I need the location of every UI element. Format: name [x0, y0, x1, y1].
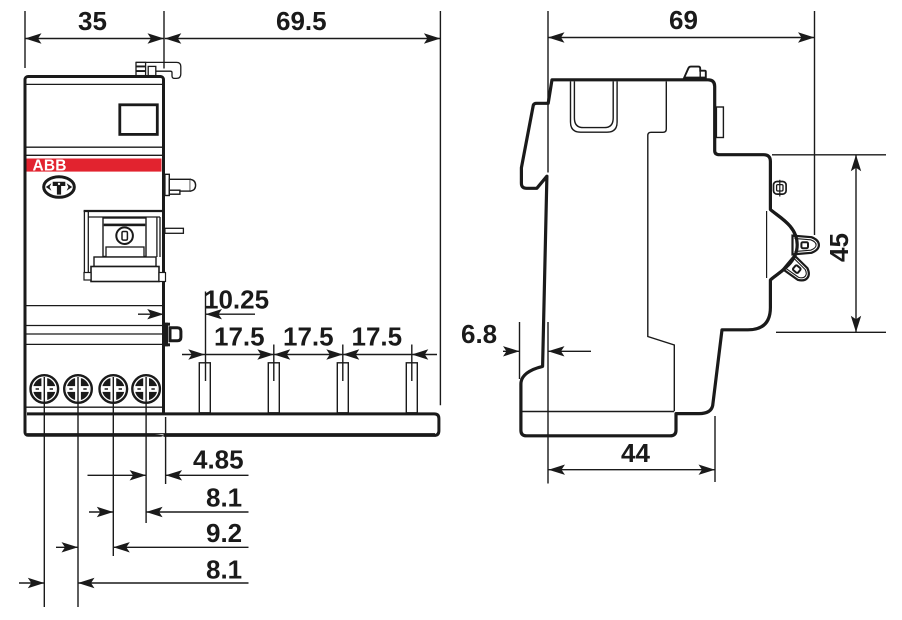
svg-text:69.5: 69.5: [276, 6, 327, 36]
svg-text:4.85: 4.85: [193, 444, 244, 474]
svg-text:44: 44: [621, 438, 650, 468]
svg-text:9.2: 9.2: [206, 518, 242, 548]
svg-text:10.25: 10.25: [204, 285, 269, 315]
svg-text:8.1: 8.1: [206, 555, 242, 585]
svg-text:17.5: 17.5: [214, 322, 265, 352]
svg-text:ABB: ABB: [33, 157, 67, 174]
svg-text:17.5: 17.5: [283, 322, 334, 352]
svg-text:35: 35: [78, 6, 107, 36]
svg-text:6.8: 6.8: [461, 319, 497, 349]
svg-text:45: 45: [824, 233, 854, 262]
svg-text:17.5: 17.5: [352, 322, 403, 352]
svg-text:69: 69: [669, 5, 698, 35]
svg-text:8.1: 8.1: [206, 483, 242, 513]
